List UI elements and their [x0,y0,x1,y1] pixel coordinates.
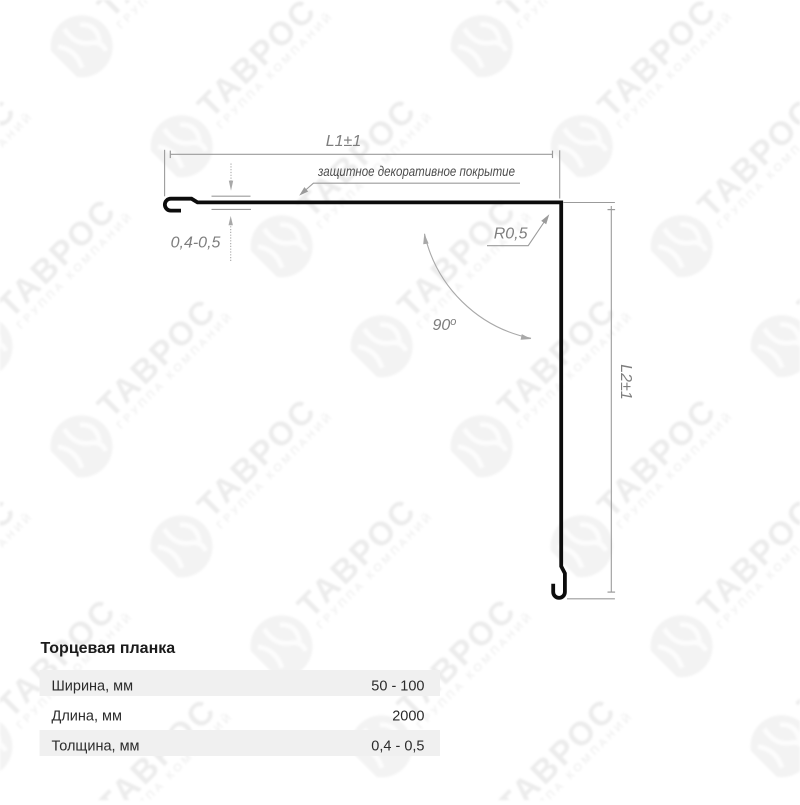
svg-text:защитное декоративное покрытие: защитное декоративное покрытие [317,163,515,179]
svg-text:50 - 100: 50 - 100 [371,679,424,695]
svg-text:90o: 90o [433,316,457,334]
svg-text:Торцевая планка: Торцевая планка [41,640,176,657]
svg-text:Толщина, мм: Толщина, мм [52,739,140,755]
svg-text:R0,5: R0,5 [494,226,528,243]
svg-text:Длина, мм: Длина, мм [52,709,122,725]
svg-text:0,4-0,5: 0,4-0,5 [171,235,221,252]
svg-text:0,4 - 0,5: 0,4 - 0,5 [371,739,424,755]
svg-text:L1±1: L1±1 [326,133,361,150]
svg-text:L2±1: L2±1 [617,364,634,399]
svg-text:2000: 2000 [392,709,424,725]
svg-text:Ширина, мм: Ширина, мм [52,679,134,695]
